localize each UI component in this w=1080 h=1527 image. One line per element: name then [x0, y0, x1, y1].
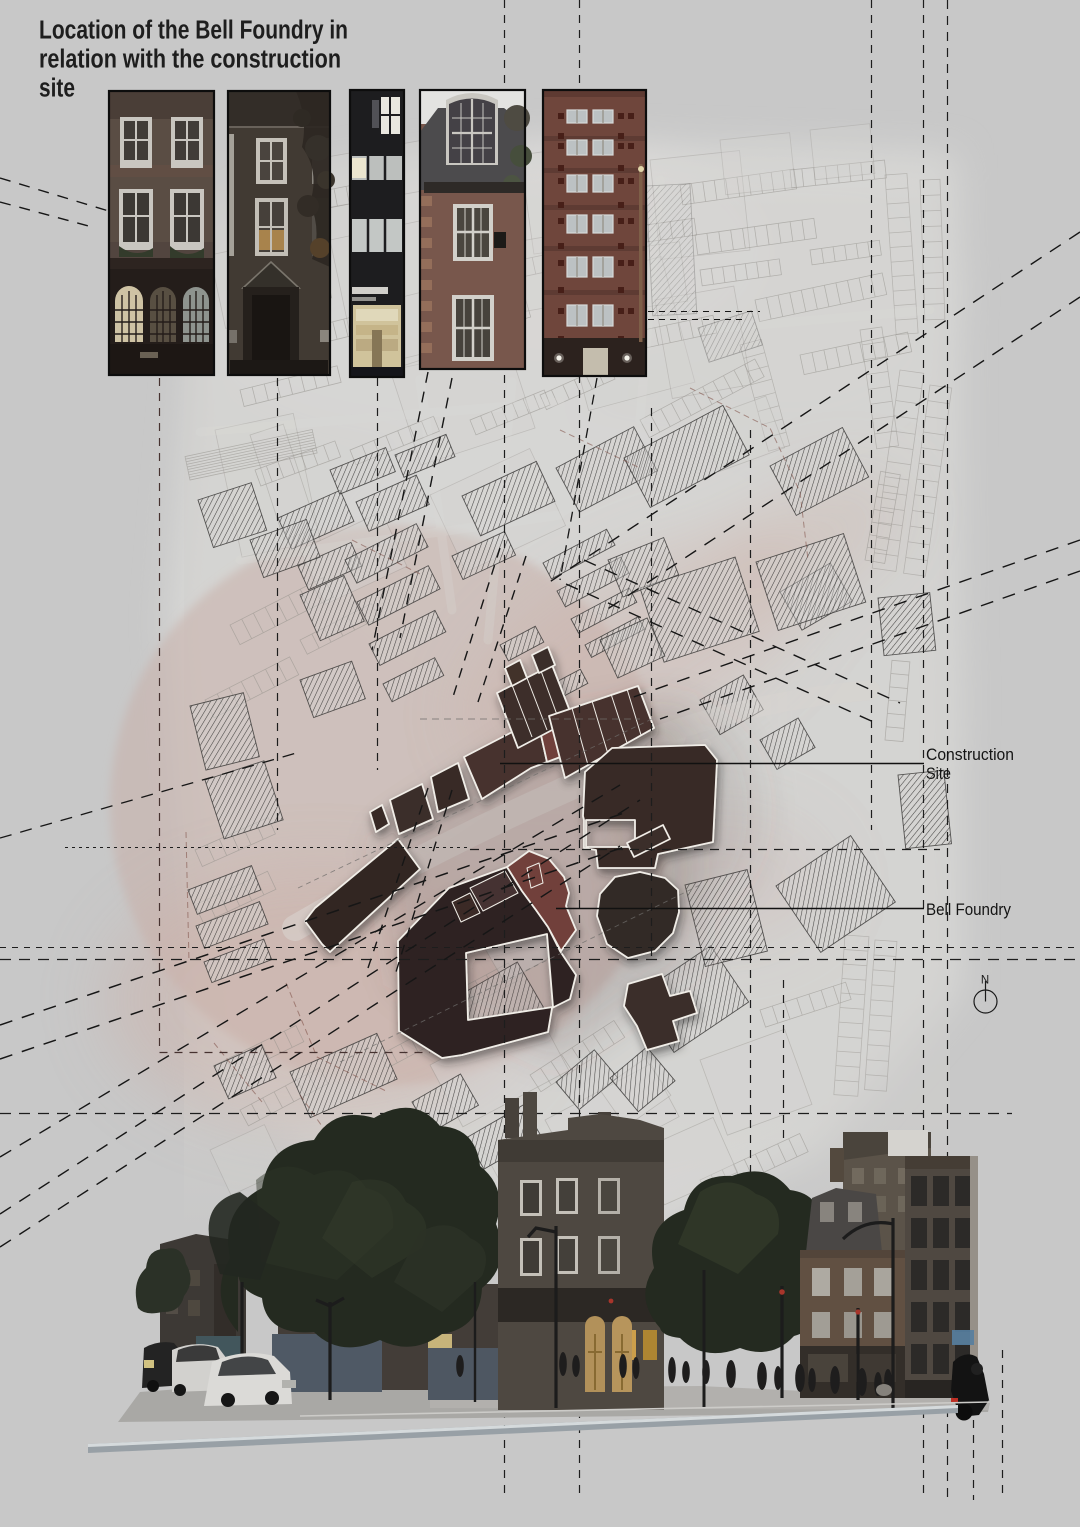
svg-text:Construction: Construction	[926, 746, 1014, 764]
svg-text:relation with the construction: relation with the construction	[39, 46, 341, 74]
svg-text:Location of the Bell Foundry i: Location of the Bell Foundry in	[39, 17, 348, 45]
svg-text:site: site	[39, 75, 75, 103]
svg-text:N: N	[981, 975, 989, 987]
svg-text:Site: Site	[926, 765, 951, 783]
svg-text:Bell Foundry: Bell Foundry	[926, 901, 1012, 919]
